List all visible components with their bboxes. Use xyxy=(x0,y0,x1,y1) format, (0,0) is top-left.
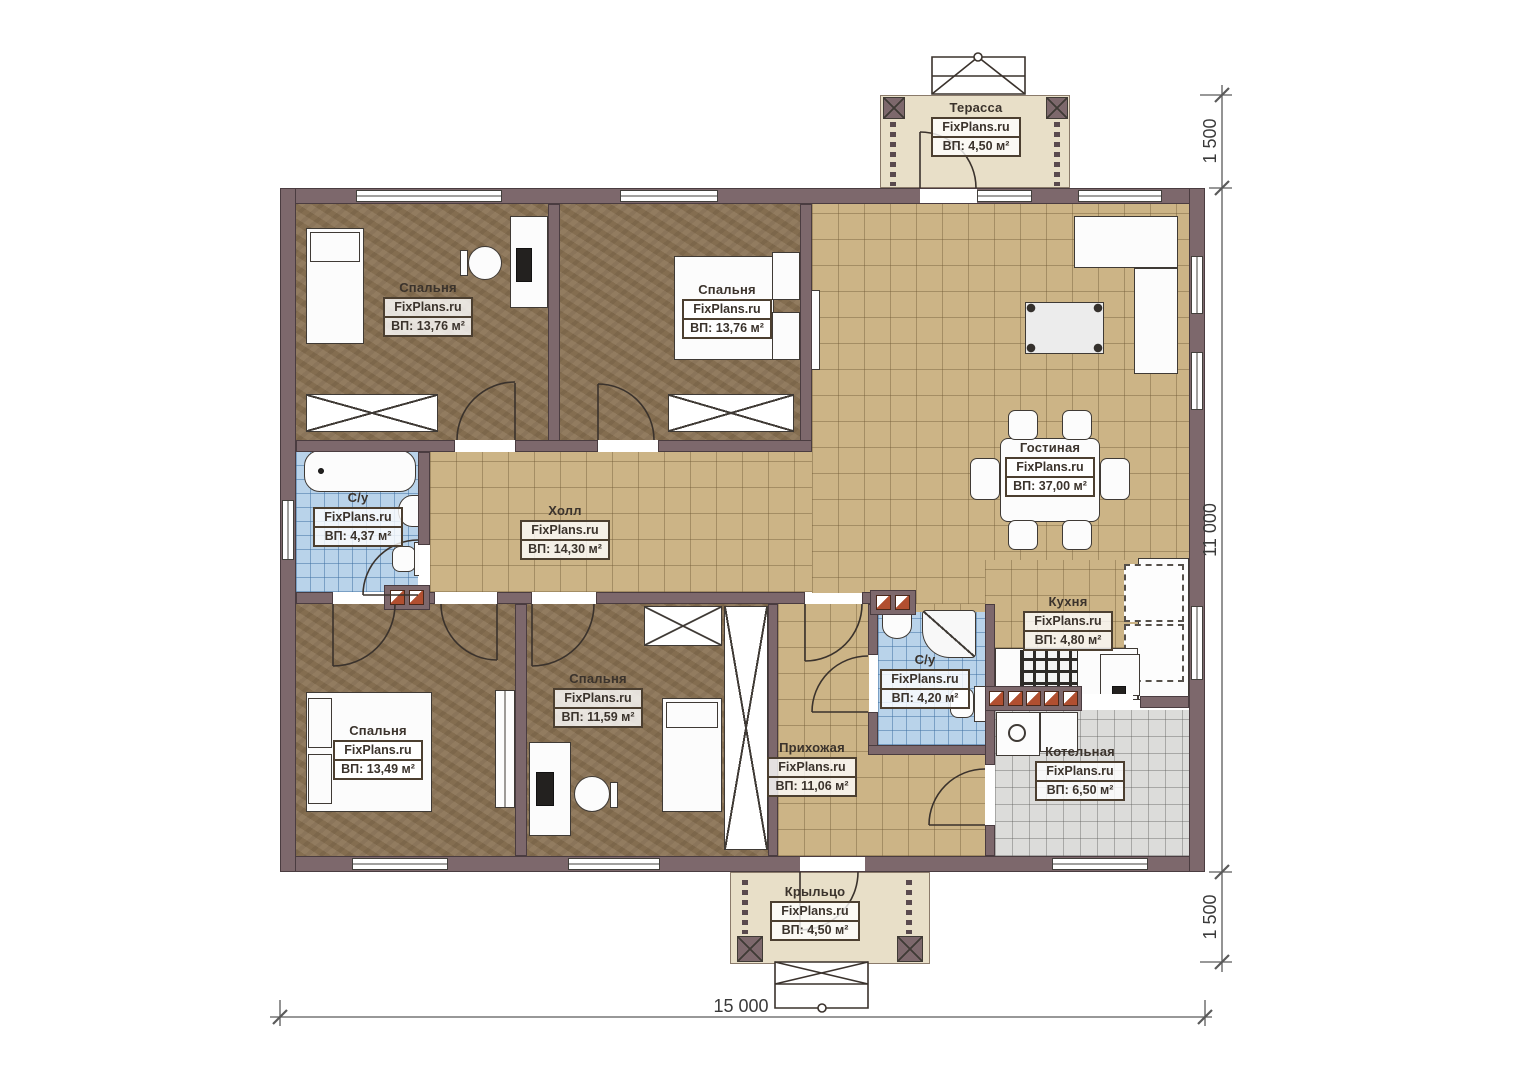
room-brand: FixPlans.ru xyxy=(335,742,421,761)
wardrobe-bottom-mid xyxy=(644,606,722,646)
room-name: Терасса xyxy=(911,100,1041,115)
room-info-box: FixPlans.ru ВП: 6,50 м² xyxy=(1035,761,1125,801)
room-area: ВП: 13,76 м² xyxy=(385,318,471,335)
toilet-bowl xyxy=(392,546,416,572)
wall-partition xyxy=(800,204,812,446)
brick-tile xyxy=(390,590,405,605)
dim-label-right-top: 1 500 xyxy=(1200,118,1220,163)
vent-shaft xyxy=(384,585,430,610)
room-info-box: FixPlans.ru ВП: 37,00 м² xyxy=(1005,457,1095,497)
room-label-living: Гостиная FixPlans.ru ВП: 37,00 м² xyxy=(985,440,1115,497)
room-label-bedroom-bottom-mid: Спальня FixPlans.ru ВП: 11,59 м² xyxy=(533,671,663,728)
room-brand: FixPlans.ru xyxy=(385,299,471,318)
room-name: Котельная xyxy=(1015,744,1145,759)
desk-chair xyxy=(574,776,610,812)
wall-partition xyxy=(1140,696,1189,708)
wall-partition xyxy=(296,592,333,604)
kitchen-upper-cabinet xyxy=(1124,564,1184,622)
room-brand: FixPlans.ru xyxy=(1037,763,1123,782)
door-opening xyxy=(455,441,515,452)
terrace-roof-symbol xyxy=(932,53,1025,94)
room-name: Спальня xyxy=(533,671,663,686)
room-label-boiler: Котельная FixPlans.ru ВП: 6,50 м² xyxy=(1015,744,1145,801)
room-label-kitchen: Кухня FixPlans.ru ВП: 4,80 м² xyxy=(1003,594,1133,651)
room-brand: FixPlans.ru xyxy=(772,903,858,922)
wall-partition xyxy=(296,440,455,452)
brick-tile xyxy=(409,590,424,605)
dining-chair xyxy=(1062,410,1092,440)
room-area: ВП: 14,30 м² xyxy=(522,541,608,558)
door-opening xyxy=(532,593,596,604)
dim-label-bottom: 15 000 xyxy=(713,996,768,1016)
room-info-box: FixPlans.ru ВП: 4,50 м² xyxy=(770,901,860,941)
chair-back xyxy=(460,250,468,276)
room-label-bedroom-bottom-left: Спальня FixPlans.ru ВП: 13,49 м² xyxy=(313,723,443,780)
terrace-post xyxy=(883,97,905,119)
door-opening xyxy=(598,441,658,452)
wardrobe-top-mid xyxy=(668,394,794,432)
room-name: С/у xyxy=(293,490,423,505)
coffee-table xyxy=(1025,302,1104,354)
room-label-porch: Крыльцо FixPlans.ru ВП: 4,50 м² xyxy=(750,884,880,941)
porch-door-opening xyxy=(800,857,865,871)
room-label-bath-mid: С/у FixPlans.ru ВП: 4,20 м² xyxy=(860,652,990,709)
room-area: ВП: 4,20 м² xyxy=(882,690,968,707)
room-name: Гостиная xyxy=(985,440,1115,455)
window xyxy=(352,858,448,870)
window xyxy=(977,190,1032,202)
room-brand: FixPlans.ru xyxy=(1025,613,1111,632)
window xyxy=(1078,190,1162,202)
room-name: Спальня xyxy=(662,282,792,297)
room-name: Прихожая xyxy=(747,740,877,755)
tall-wardrobe xyxy=(724,606,768,850)
window xyxy=(1191,256,1203,314)
dimension-line-bottom xyxy=(270,1000,1212,1026)
room-info-box: FixPlans.ru ВП: 4,80 м² xyxy=(1023,611,1113,651)
room-label-entry: Прихожая FixPlans.ru ВП: 11,06 м² xyxy=(747,740,877,797)
wall-partition xyxy=(768,604,778,856)
door-opening xyxy=(805,593,862,604)
room-info-box: FixPlans.ru ВП: 4,50 м² xyxy=(931,117,1021,157)
room-area: ВП: 4,50 м² xyxy=(933,138,1019,155)
computer-monitor xyxy=(516,248,532,282)
bed-pillow xyxy=(666,702,718,728)
wall-partition xyxy=(596,592,805,604)
bed-pillow xyxy=(310,232,360,262)
room-brand: FixPlans.ru xyxy=(315,509,401,528)
wall-partition xyxy=(985,825,995,856)
computer-monitor xyxy=(536,772,554,806)
room-info-box: FixPlans.ru ВП: 13,49 м² xyxy=(333,740,423,780)
room-area: ВП: 4,80 м² xyxy=(1025,632,1111,649)
room-label-bedroom-top-left: Спальня FixPlans.ru ВП: 13,76 м² xyxy=(363,280,493,337)
room-area: ВП: 4,37 м² xyxy=(315,528,401,545)
wall-partition xyxy=(868,745,990,755)
window xyxy=(1052,858,1148,870)
brick-tile xyxy=(1063,691,1078,706)
room-area: ВП: 11,59 м² xyxy=(555,709,641,726)
room-brand: FixPlans.ru xyxy=(933,119,1019,138)
room-info-box: FixPlans.ru ВП: 4,20 м² xyxy=(880,669,970,709)
porch-post xyxy=(897,936,923,962)
sink-mid-bath xyxy=(882,613,912,639)
room-area: ВП: 13,76 м² xyxy=(684,320,770,337)
room-name: С/у xyxy=(860,652,990,667)
vent-shaft xyxy=(985,686,1082,711)
desk-chair xyxy=(468,246,502,280)
wall-partition xyxy=(515,440,598,452)
room-label-bedroom-top-mid: Спальня FixPlans.ru ВП: 13,76 м² xyxy=(662,282,792,339)
room-name: Спальня xyxy=(313,723,443,738)
bathtub-drain xyxy=(318,468,324,474)
door-opening xyxy=(1077,694,1133,710)
room-info-box: FixPlans.ru ВП: 14,30 м² xyxy=(520,520,610,560)
wardrobe-top-left xyxy=(306,394,438,432)
room-area: ВП: 6,50 м² xyxy=(1037,782,1123,799)
terrace-door-opening xyxy=(920,189,977,203)
room-area: ВП: 4,50 м² xyxy=(772,922,858,939)
vent-shaft xyxy=(870,590,916,615)
room-area: ВП: 13,49 м² xyxy=(335,761,421,778)
brick-tile xyxy=(1044,691,1059,706)
room-info-box: FixPlans.ru ВП: 4,37 м² xyxy=(313,507,403,547)
room-area: ВП: 37,00 м² xyxy=(1007,478,1093,495)
brick-tile xyxy=(989,691,1004,706)
room-brand: FixPlans.ru xyxy=(522,522,608,541)
window xyxy=(356,190,502,202)
room-info-box: FixPlans.ru ВП: 13,76 м² xyxy=(383,297,473,337)
wardrobe-bottom-left xyxy=(495,690,515,808)
wall-partition xyxy=(548,204,560,446)
room-label-bath-left: С/у FixPlans.ru ВП: 4,37 м² xyxy=(293,490,423,547)
sofa-side-section xyxy=(1134,268,1178,374)
wall-partition xyxy=(658,440,812,452)
dining-chair xyxy=(1008,520,1038,550)
room-name: Холл xyxy=(500,503,630,518)
chair-back xyxy=(610,782,618,808)
room-name: Крыльцо xyxy=(750,884,880,899)
room-brand: FixPlans.ru xyxy=(1007,459,1093,478)
window xyxy=(568,858,660,870)
floor-plan-canvas: 1 500 11 000 1 500 15 000 Терасса FixPla… xyxy=(0,0,1528,1080)
door-opening xyxy=(986,765,995,825)
brick-tile xyxy=(895,595,910,610)
room-area: ВП: 11,06 м² xyxy=(769,778,855,795)
wall-partition xyxy=(497,592,532,604)
brick-tile xyxy=(1008,691,1023,706)
window xyxy=(1191,606,1203,680)
room-label-hall: Холл FixPlans.ru ВП: 14,30 м² xyxy=(500,503,630,560)
room-brand: FixPlans.ru xyxy=(882,671,968,690)
porch-steps-symbol xyxy=(775,962,868,1012)
door-opening xyxy=(435,593,497,604)
window xyxy=(620,190,718,202)
room-label-terrace: Терасса FixPlans.ru ВП: 4,50 м² xyxy=(911,100,1041,157)
room-brand: FixPlans.ru xyxy=(769,759,855,778)
room-info-box: FixPlans.ru ВП: 11,59 м² xyxy=(553,688,643,728)
room-brand: FixPlans.ru xyxy=(555,690,641,709)
washer-drum xyxy=(1008,724,1026,742)
wall-partition xyxy=(515,604,527,856)
sofa-top-section xyxy=(1074,216,1178,268)
brick-tile xyxy=(1026,691,1041,706)
room-name: Кухня xyxy=(1003,594,1133,609)
dim-label-right-bottom: 1 500 xyxy=(1200,894,1220,939)
room-brand: FixPlans.ru xyxy=(684,301,770,320)
room-info-box: FixPlans.ru ВП: 13,76 м² xyxy=(682,299,772,339)
window xyxy=(1191,352,1203,410)
terrace-post xyxy=(1046,97,1068,119)
room-name: Спальня xyxy=(363,280,493,295)
dining-chair xyxy=(1062,520,1092,550)
brick-tile xyxy=(876,595,891,610)
room-info-box: FixPlans.ru ВП: 11,06 м² xyxy=(767,757,857,797)
dining-chair xyxy=(1008,410,1038,440)
